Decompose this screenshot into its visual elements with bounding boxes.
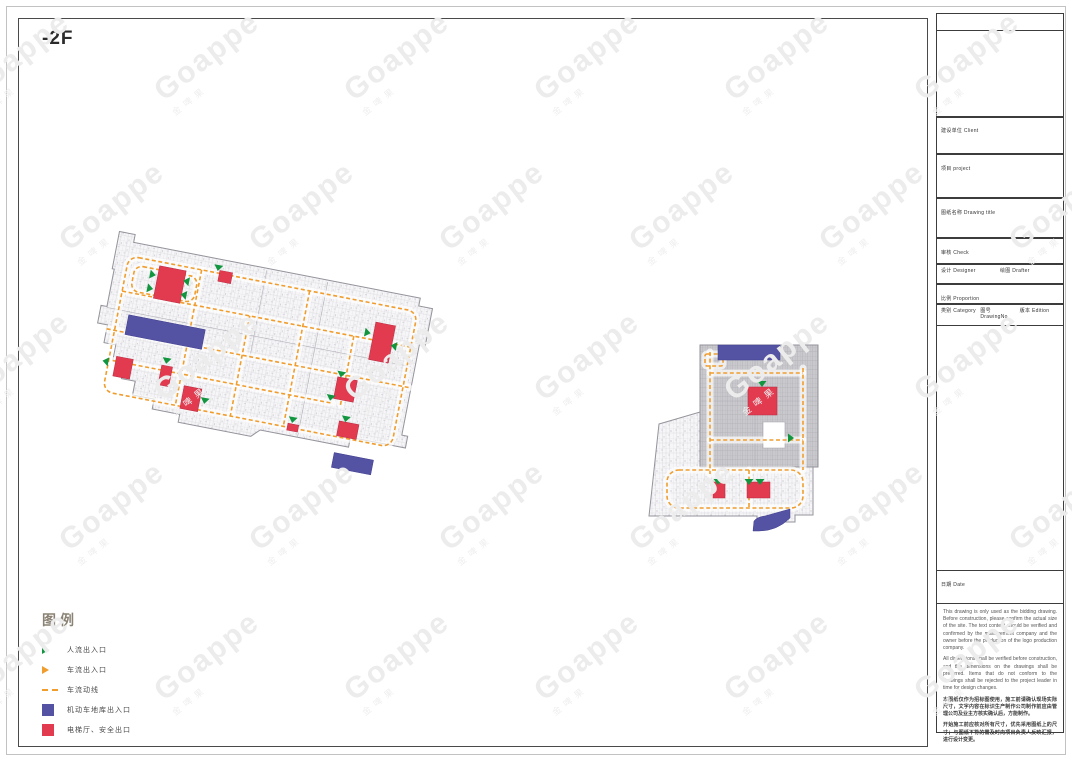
floor-plans-canvas xyxy=(0,0,1072,761)
legend-title: 图例 xyxy=(42,610,131,630)
square-swatch-icon xyxy=(42,724,60,736)
elevator-exit-marker xyxy=(218,270,233,283)
note-en-2: All dimensions shall be verified before … xyxy=(943,656,1057,692)
category-label: 类别 Category xyxy=(941,307,980,325)
field-drawing-title: 图纸名称 Drawing title xyxy=(937,197,1063,237)
field-date: 日期 Date xyxy=(936,570,1064,604)
triangle-swatch-icon xyxy=(42,646,60,654)
field-client: 建设单位 Client xyxy=(937,117,1063,153)
legend-item-label: 车流出入口 xyxy=(67,665,107,675)
proportion-label: 比例 Proportion xyxy=(941,296,979,302)
title-block: 建设单位 Client 项目 project 图纸名称 Drawing titl… xyxy=(936,14,1064,733)
legend-item-3: 机动车地库出入口 xyxy=(42,704,131,716)
titleblock-fields: 建设单位 Client 项目 project 图纸名称 Drawing titl… xyxy=(936,116,1064,326)
basement-plan-annex xyxy=(649,345,818,531)
elevator-exit-marker xyxy=(334,377,358,402)
client-label: 建设单位 Client xyxy=(941,128,978,134)
elevator-exit-marker xyxy=(747,482,770,498)
drawing-no-label: 图号 DrawingNo xyxy=(980,307,1019,325)
note-cn-2: 开始施工前应核对所有尺寸，优先采用图纸上的尺寸；与图纸不符的需及时向项目负责人反… xyxy=(943,722,1057,744)
legend-item-4: 电梯厅、安全出口 xyxy=(42,724,131,736)
plan-region-white xyxy=(763,422,785,448)
titleblock-blank-area xyxy=(936,325,1064,571)
basement-plan-main xyxy=(79,231,435,481)
check-label: 审核 Check xyxy=(941,250,969,256)
square-swatch-icon xyxy=(42,704,60,716)
legend-item-2: 车流动线 xyxy=(42,684,131,696)
elevator-exit-marker xyxy=(113,356,134,379)
garage-entrance-marker xyxy=(331,453,373,475)
elevator-exit-marker xyxy=(713,482,725,498)
titleblock-notes: This drawing is only used as the bidding… xyxy=(936,603,1064,733)
garage-entrance-marker xyxy=(718,345,780,360)
field-project: 项目 project xyxy=(937,153,1063,197)
edition-label: 版本 Edition xyxy=(1020,307,1059,325)
triangle-swatch-icon xyxy=(42,666,60,674)
dash-swatch-icon xyxy=(42,689,60,691)
legend-item-label: 电梯厅、安全出口 xyxy=(67,725,131,735)
date-label: 日期 Date xyxy=(941,582,965,588)
field-designer-drafter: 设计 Designer 绘图 Drafter xyxy=(937,263,1063,283)
field-category-no-edition: 类别 Category 图号 DrawingNo 版本 Edition xyxy=(937,303,1063,327)
legend-items: 人流出入口车流出入口车流动线机动车地库出入口电梯厅、安全出口 xyxy=(42,644,131,736)
field-check: 审核 Check xyxy=(937,237,1063,263)
note-cn-1: 本图纸仅作为招标图使用，施工前请确认现场实际尺寸，文字内容在标识生产制作公司制作… xyxy=(943,697,1057,719)
legend-item-label: 人流出入口 xyxy=(67,645,107,655)
field-proportion: 比例 Proportion xyxy=(937,283,1063,303)
titleblock-logo-area xyxy=(936,30,1064,118)
legend-item-label: 车流动线 xyxy=(67,685,99,695)
drawing-title-label: 图纸名称 Drawing title xyxy=(941,210,995,216)
legend-item-1: 车流出入口 xyxy=(42,664,131,676)
legend-item-0: 人流出入口 xyxy=(42,644,131,656)
designer-label: 设计 Designer xyxy=(941,267,1000,281)
note-en-1: This drawing is only used as the bidding… xyxy=(943,609,1057,653)
legend: 图例 人流出入口车流出入口车流动线机动车地库出入口电梯厅、安全出口 xyxy=(42,610,131,744)
drafter-label: 绘图 Drafter xyxy=(1000,267,1059,281)
project-label: 项目 project xyxy=(941,166,970,172)
legend-item-label: 机动车地库出入口 xyxy=(67,705,131,715)
elevator-exit-marker xyxy=(748,387,777,415)
titleblock-header-strip xyxy=(936,13,1064,31)
